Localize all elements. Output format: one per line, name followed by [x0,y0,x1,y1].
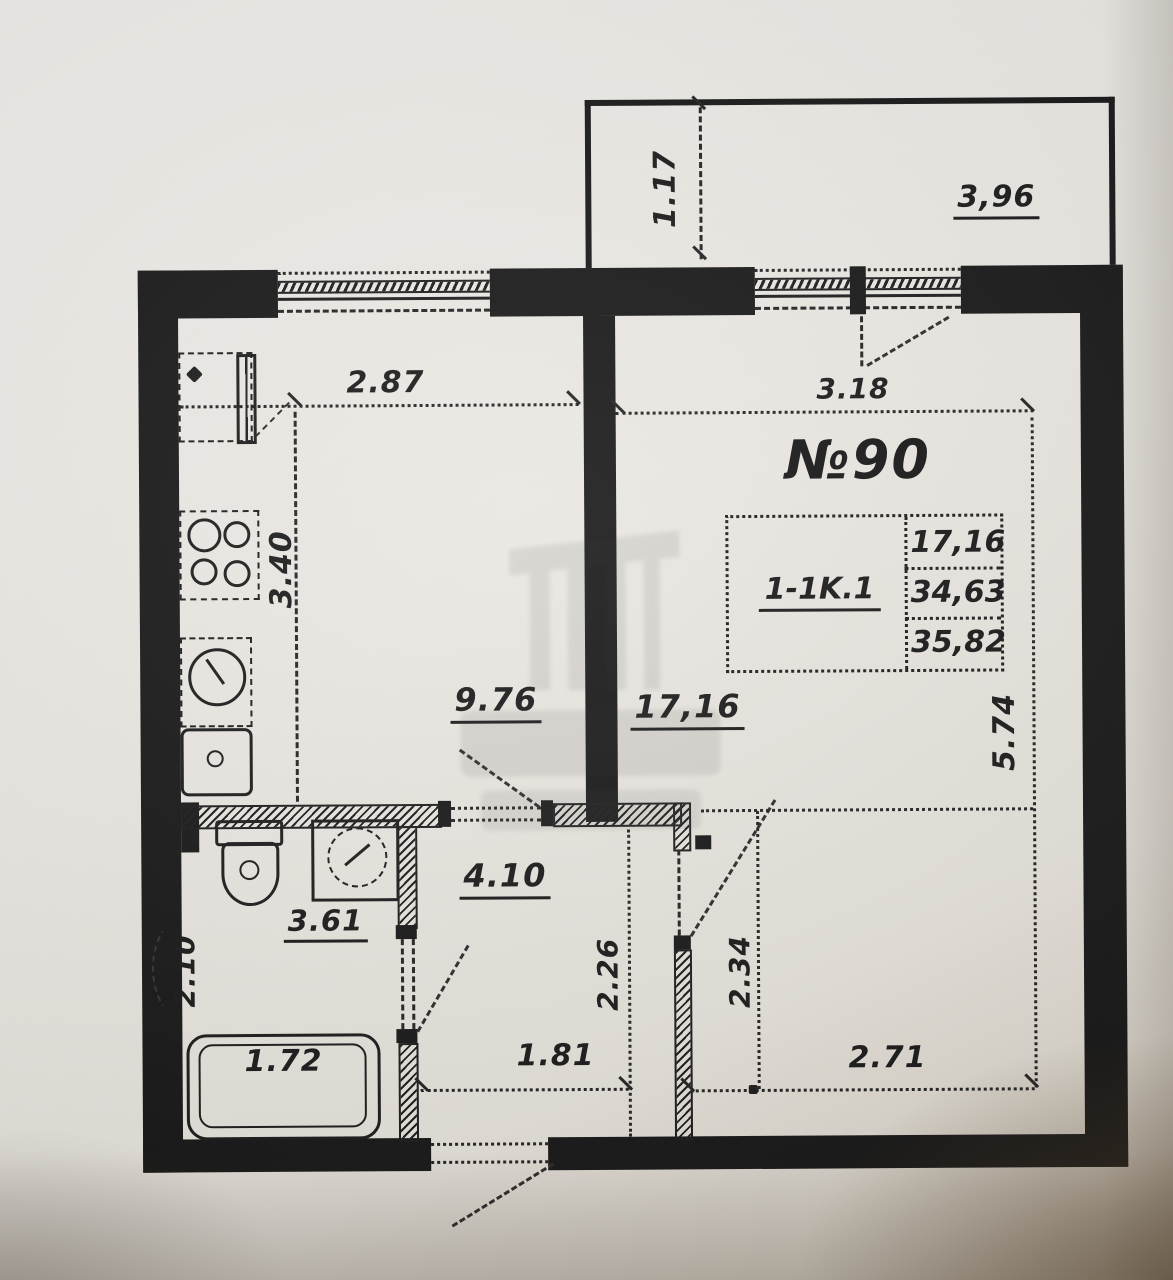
bathroom-door-jamb-bottom [396,1029,417,1043]
wall-left [138,270,184,1172]
floor-plan-photo: 1.17 3,96 [0,0,1173,1280]
kitchen-window-inner-line [278,309,490,313]
dim-line-living-width-bottom [691,1087,1035,1092]
dim-line-hallway-width [421,1088,629,1092]
balcony-dimension-line [699,107,703,259]
table-divider-vertical [904,517,908,669]
dim-balcony-width: 3,96 [953,179,1039,220]
unit-type-label: 1-1K.1 [759,571,881,612]
balcony-wall-left [585,100,592,268]
watermark [439,539,741,871]
toilet-drain [239,860,259,880]
kitchen-window-glass-line [278,297,490,301]
dim-hallway-width: 1.81 [516,1038,594,1073]
kitchen-cupboard-door [236,354,257,444]
table-row-line [905,566,1001,570]
hall-door-jamb-bottom [674,935,691,949]
dim-dot [749,1085,758,1094]
wall-bottom-right-segment [548,1134,1128,1171]
balcony-window-mullion [850,266,866,314]
washing-machine-drum [327,827,387,887]
unit-living-area: 17,16 [910,524,1005,560]
dim-bathroom-depth: 2.10 [168,934,201,1008]
dim-line-hallway-depth-right [756,811,761,1089]
bathroom-door-swing [416,945,469,1033]
table-row-line [905,616,1001,620]
wall-bathroom-right-upper [397,826,418,929]
kitchen-window-outer-line [278,271,490,275]
bottom-door-threshold [431,1160,548,1164]
wall-top-middle-segment [490,267,755,317]
dim-line-room-boundary [701,807,1033,812]
bathroom-area-label: 3.61 [284,903,368,943]
unit-apartment-area: 34,63 [911,574,1006,610]
dim-line-living-depth [1031,417,1038,1087]
dim-living-width-top: 3.18 [816,372,889,405]
bathroom-door-opening [401,939,405,1029]
stove-burner [224,560,251,587]
balcony-wall-right [1109,97,1116,265]
unit-info-table: 1-1K.1 17,16 34,63 35,82 [725,513,1004,673]
stove-burner [223,521,250,548]
wall-bottom-left-segment [143,1138,431,1173]
stove-burner [187,518,221,552]
dim-hallway-depth: 2.26 [591,937,624,1011]
dim-kitchen-depth: 3.40 [264,534,299,608]
kitchen-sink-drain [207,750,224,767]
wall-bathroom-right-lower [398,1043,419,1142]
unit-total-area: 35,82 [911,624,1006,660]
floor-plan: 1.17 3,96 [0,0,1173,1280]
balcony-door-leaf [860,316,863,366]
bathroom-door-jamb-top [396,925,417,939]
apartment-number: №90 [785,428,932,492]
dim-hallway-depth-right: 2.34 [723,934,756,1008]
dim-balcony-depth: 1.17 [648,154,683,228]
kitchen-window-sill [278,280,490,294]
bathroom-door-opening [412,939,416,1029]
wall-right [1080,265,1129,1167]
balcony-wall-top [585,97,1115,106]
bottom-door-swing [452,1162,555,1227]
stove-burner [190,558,217,585]
dim-line-living-width-top [616,409,1034,415]
dim-living-depth: 5.74 [987,697,1022,771]
dim-kitchen-width: 2.87 [346,365,424,400]
dim-bathtub-width: 1.72 [244,1044,322,1079]
wall-hall-livingroom-lower [674,949,693,1140]
bottom-door-threshold [431,1142,548,1146]
balcony-door-swing [866,316,949,367]
dim-living-width-bottom: 2.71 [848,1040,926,1075]
